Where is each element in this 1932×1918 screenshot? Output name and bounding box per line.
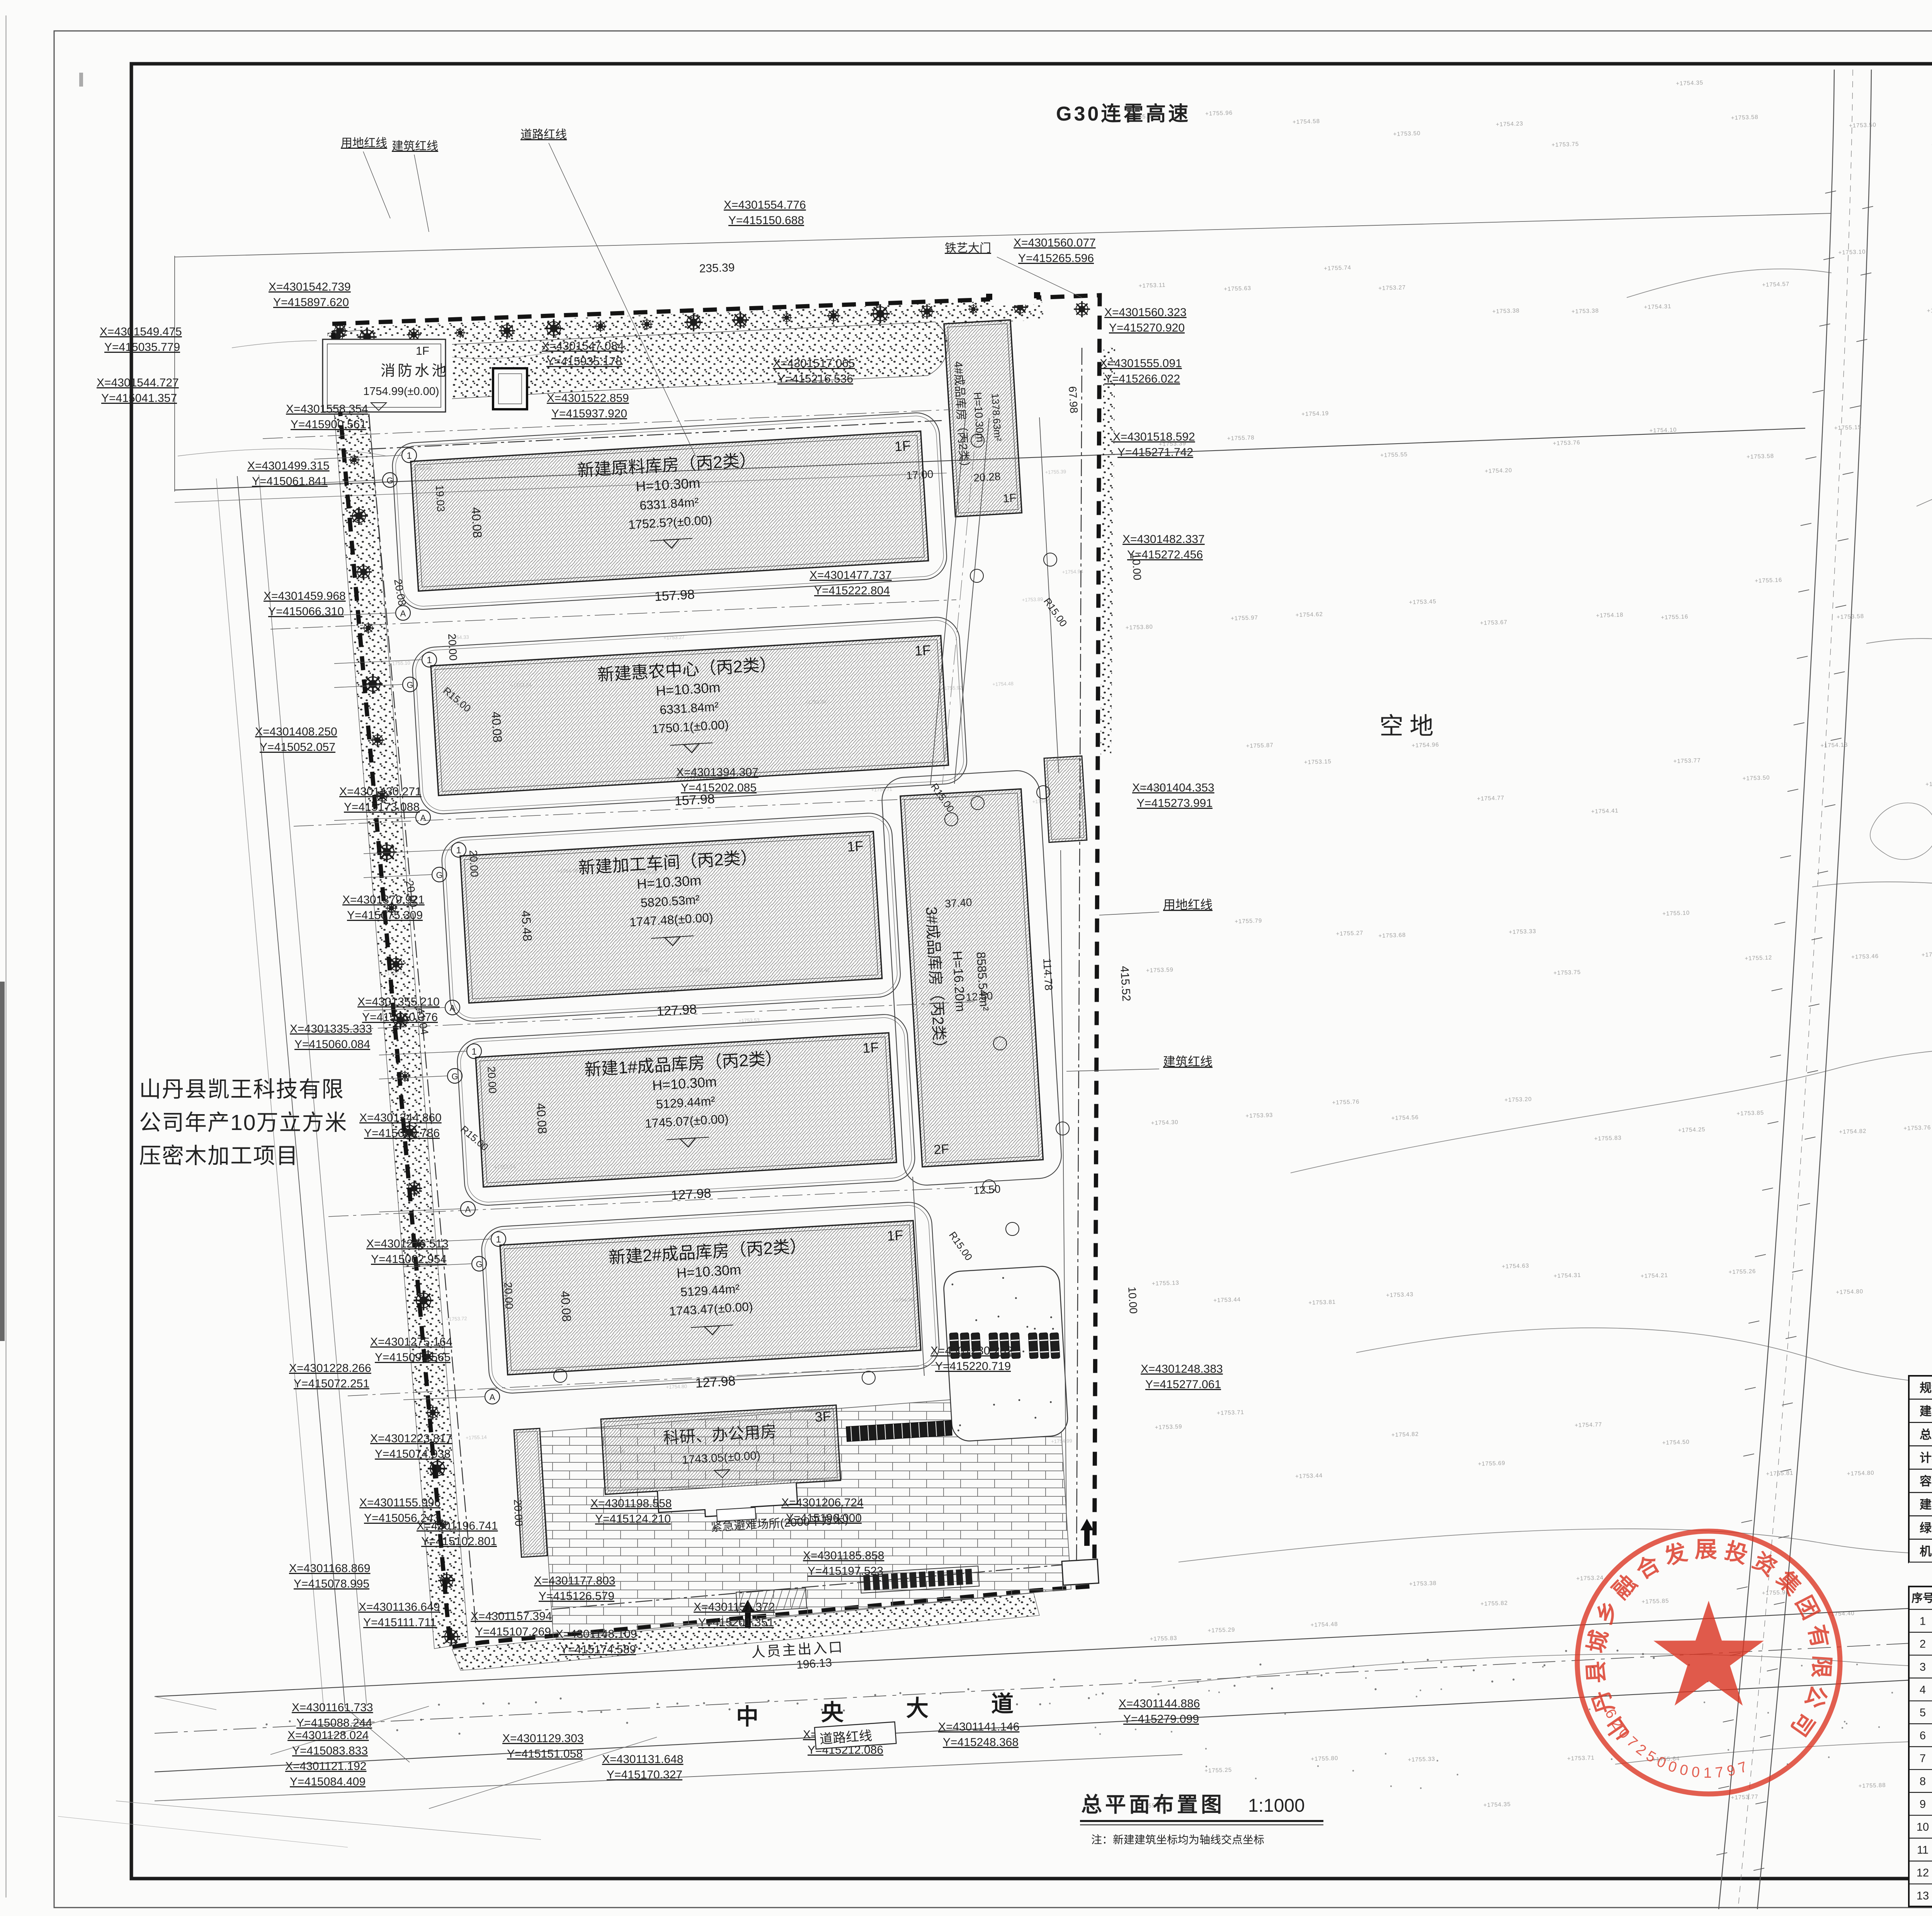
svg-text:+1753.76: +1753.76 <box>1903 1124 1931 1132</box>
svg-text:X=4301430.271: X=4301430.271 <box>339 785 422 798</box>
svg-text:道: 道 <box>991 1692 1014 1717</box>
svg-text:Y=415279.099: Y=415279.099 <box>1123 1713 1199 1726</box>
svg-text:+1754.23: +1754.23 <box>1496 120 1524 128</box>
svg-text:Y=415272.456: Y=415272.456 <box>1127 548 1203 561</box>
svg-text:+1755.81: +1755.81 <box>1766 1470 1794 1477</box>
svg-text:Y=415197.523: Y=415197.523 <box>808 1565 883 1578</box>
svg-text:Y=415216.536: Y=415216.536 <box>777 373 853 385</box>
svg-text:1754.99(±0.00): 1754.99(±0.00) <box>363 385 439 398</box>
svg-text:+1754.25: +1754.25 <box>1678 1126 1706 1133</box>
svg-text:+1753.33: +1753.33 <box>1509 928 1536 935</box>
svg-text:Y=415196.000: Y=415196.000 <box>786 1512 862 1525</box>
svg-text:X=4301157.394: X=4301157.394 <box>471 1610 552 1623</box>
svg-text:Y=415062.954: Y=415062.954 <box>371 1253 447 1266</box>
svg-text:+1753.44: +1753.44 <box>1213 1296 1241 1304</box>
svg-text:Y=415277.061: Y=415277.061 <box>1145 1378 1221 1391</box>
svg-text:+1753.27: +1753.27 <box>663 634 685 641</box>
svg-text:Y=415061.841: Y=415061.841 <box>252 475 328 488</box>
svg-text:+1754.30: +1754.30 <box>1922 951 1932 958</box>
svg-text:X=4301558.354: X=4301558.354 <box>286 403 368 415</box>
svg-text:+1754.62: +1754.62 <box>1296 611 1323 618</box>
svg-text:X=4301459.968: X=4301459.968 <box>264 590 346 602</box>
svg-text:1: 1 <box>1920 1615 1926 1627</box>
svg-text:+1753.43: +1753.43 <box>1386 1291 1414 1299</box>
svg-text:+1753.58: +1753.58 <box>1837 613 1864 620</box>
svg-text:40.08: 40.08 <box>534 1103 549 1134</box>
svg-text:+1753.10: +1753.10 <box>1838 248 1866 256</box>
svg-text:+1755.26: +1755.26 <box>1728 1268 1756 1275</box>
svg-text:+1755.39: +1755.39 <box>1045 469 1066 475</box>
svg-text:A: A <box>490 1392 495 1402</box>
svg-text:X=4301554.776: X=4301554.776 <box>724 199 806 211</box>
svg-text:+1753.93: +1753.93 <box>1245 1112 1273 1119</box>
svg-text:+1754.48: +1754.48 <box>992 681 1014 687</box>
svg-text:Y=415060.376: Y=415060.376 <box>362 1011 438 1024</box>
svg-text:1F: 1F <box>894 437 911 454</box>
svg-text:10.00: 10.00 <box>1126 1287 1139 1314</box>
svg-text:计容建筑面积：: 计容建筑面积： <box>1920 1451 1932 1465</box>
svg-text:+1754.82: +1754.82 <box>1391 1431 1419 1438</box>
svg-text:规划用地面积：: 规划用地面积： <box>1920 1381 1932 1395</box>
svg-text:+1753.75: +1753.75 <box>1553 969 1581 976</box>
svg-text:X=4301379.921: X=4301379.921 <box>342 893 425 906</box>
svg-text:Y=415266.022: Y=415266.022 <box>1104 373 1180 385</box>
svg-text:12: 12 <box>1917 1867 1929 1879</box>
svg-text:Y=415248.368: Y=415248.368 <box>943 1736 1019 1749</box>
svg-text:+1753.76: +1753.76 <box>1553 439 1580 447</box>
svg-text:235.39: 235.39 <box>699 261 735 275</box>
svg-text:Y=415265.596: Y=415265.596 <box>1018 252 1094 265</box>
svg-text:+1754.96: +1754.96 <box>1412 742 1439 749</box>
svg-text:+1754.77: +1754.77 <box>1575 1421 1602 1429</box>
svg-text:Y=415093.565: Y=415093.565 <box>375 1351 451 1364</box>
svg-text:Y=415900.561: Y=415900.561 <box>291 418 366 431</box>
svg-text:415.52: 415.52 <box>1118 965 1133 1002</box>
svg-text:12.50: 12.50 <box>966 990 993 1003</box>
svg-text:X=4301482.337: X=4301482.337 <box>1122 533 1205 546</box>
svg-text:Y=415222.804: Y=415222.804 <box>814 584 890 597</box>
svg-text:157.98: 157.98 <box>654 587 695 604</box>
svg-text:X=4301129.303: X=4301129.303 <box>502 1732 583 1745</box>
svg-text:+1755.63: +1755.63 <box>1224 285 1252 292</box>
svg-text:Y=415074.038: Y=415074.038 <box>375 1448 451 1460</box>
svg-text:+1755.55: +1755.55 <box>1380 451 1408 458</box>
svg-text:Y=415052.057: Y=415052.057 <box>260 741 335 754</box>
svg-text:公司年产10万立方米: 公司年产10万立方米 <box>139 1110 347 1135</box>
svg-text:+1755.29: +1755.29 <box>1207 1627 1235 1634</box>
svg-text:道路红线: 道路红线 <box>520 128 567 141</box>
svg-text:+1755.78: +1755.78 <box>1227 434 1255 442</box>
svg-text:X=4301228.266: X=4301228.266 <box>289 1362 371 1375</box>
svg-text:+1755.69: +1755.69 <box>1478 1460 1506 1467</box>
svg-text:Y=415935.178: Y=415935.178 <box>546 355 622 368</box>
svg-text:X=4301168.869: X=4301168.869 <box>289 1562 370 1575</box>
svg-text:127.98: 127.98 <box>695 1374 736 1391</box>
svg-text:Y=415937.920: Y=415937.920 <box>551 407 627 420</box>
svg-text:Y=415897.620: Y=415897.620 <box>273 296 349 309</box>
svg-text:11: 11 <box>1917 1844 1929 1856</box>
svg-text:40.08: 40.08 <box>489 711 505 743</box>
svg-text:+1755.74: +1755.74 <box>1324 264 1352 272</box>
svg-text:+1754.80: +1754.80 <box>1847 1470 1874 1477</box>
svg-text:45.48: 45.48 <box>519 910 535 942</box>
svg-text:Y=415041.357: Y=415041.357 <box>101 392 177 405</box>
svg-text:+1753.15: +1753.15 <box>1304 758 1332 766</box>
svg-text:+1755.85: +1755.85 <box>1641 1598 1669 1605</box>
svg-text:+1755.82: +1755.82 <box>1480 1600 1508 1607</box>
svg-text:+1753.58: +1753.58 <box>1731 114 1759 121</box>
svg-text:X=4301394.307: X=4301394.307 <box>676 766 759 779</box>
svg-text:Y=415075.309: Y=415075.309 <box>347 909 423 922</box>
svg-text:X=4301223.817: X=4301223.817 <box>370 1432 452 1445</box>
svg-text:+1753.71: +1753.71 <box>1217 1409 1245 1416</box>
svg-text:+1753.89: +1753.89 <box>1022 596 1043 603</box>
svg-text:G: G <box>386 476 393 485</box>
svg-text:Y=415202.085: Y=415202.085 <box>681 781 757 794</box>
svg-text:+1753.58: +1753.58 <box>1747 453 1774 460</box>
svg-text:X=4301131.648: X=4301131.648 <box>602 1753 683 1766</box>
svg-text:X=4301144.886: X=4301144.886 <box>1119 1697 1200 1710</box>
svg-text:114.78: 114.78 <box>1041 958 1055 991</box>
svg-text:20.28: 20.28 <box>973 470 1001 484</box>
svg-text:消防水池: 消防水池 <box>381 363 449 379</box>
svg-text:+1754.30: +1754.30 <box>1151 1119 1179 1126</box>
svg-text:X=4301198.558: X=4301198.558 <box>590 1497 672 1510</box>
svg-text:Y=415035.779: Y=415035.779 <box>104 341 180 354</box>
svg-text:12.50: 12.50 <box>973 1183 1001 1196</box>
svg-text:G: G <box>436 870 442 880</box>
svg-text:9: 9 <box>1920 1798 1926 1811</box>
svg-text:+1754.21: +1754.21 <box>1641 1272 1668 1279</box>
svg-text:Y=415174.589: Y=415174.589 <box>560 1643 636 1656</box>
svg-text:20.00: 20.00 <box>502 1282 515 1310</box>
svg-text:Y=415126.579: Y=415126.579 <box>539 1590 614 1603</box>
svg-text:+1754.63: +1754.63 <box>1502 1263 1529 1270</box>
svg-text:X=4301275.164: X=4301275.164 <box>370 1336 452 1348</box>
svg-text:1F: 1F <box>862 1039 879 1056</box>
svg-text:Y=415111.711: Y=415111.711 <box>363 1616 436 1629</box>
svg-text:+1753.20: +1753.20 <box>1504 1096 1532 1103</box>
svg-text:4: 4 <box>1920 1684 1926 1696</box>
svg-text:3F: 3F <box>814 1408 831 1425</box>
svg-text:X=4301555.091: X=4301555.091 <box>1100 357 1182 370</box>
svg-text:+1753.80: +1753.80 <box>1126 624 1153 631</box>
svg-text:+1753.85: +1753.85 <box>1736 1110 1764 1117</box>
svg-text:+1754.80: +1754.80 <box>666 1384 687 1390</box>
svg-text:X=4301517.065: X=4301517.065 <box>773 357 855 370</box>
svg-text:+1753.27: +1753.27 <box>1378 284 1406 291</box>
svg-text:+1754.35: +1754.35 <box>1676 80 1704 87</box>
svg-text:+1753.68: +1753.68 <box>1378 932 1406 939</box>
svg-text:1:1000: 1:1000 <box>1248 1795 1305 1816</box>
svg-text:X=4301404.353: X=4301404.353 <box>1132 781 1214 794</box>
svg-text:+1755.33: +1755.33 <box>1408 1756 1435 1763</box>
svg-text:用地红线: 用地红线 <box>341 137 387 150</box>
svg-text:Y=415072.251: Y=415072.251 <box>294 1377 369 1390</box>
svg-text:5: 5 <box>1920 1707 1926 1719</box>
svg-text:6: 6 <box>1920 1729 1926 1742</box>
svg-text:20.00: 20.00 <box>467 850 481 878</box>
svg-text:G: G <box>476 1259 482 1269</box>
svg-text:40.08: 40.08 <box>558 1290 574 1322</box>
svg-text:压密木加工项目: 压密木加工项目 <box>139 1144 299 1168</box>
svg-text:X=4301141.146: X=4301141.146 <box>938 1721 1019 1733</box>
svg-text:Y=415173.088: Y=415173.088 <box>344 801 420 813</box>
svg-text:+1755.79: +1755.79 <box>1235 917 1262 925</box>
svg-text:+1754.31: +1754.31 <box>1553 1272 1581 1279</box>
svg-text:X=4301148.109: X=4301148.109 <box>556 1628 637 1641</box>
svg-text:Y=415056.243: Y=415056.243 <box>364 1512 440 1525</box>
svg-text:X=4301560.077: X=4301560.077 <box>1014 237 1096 249</box>
svg-text:13: 13 <box>1917 1890 1929 1902</box>
svg-text:Y=415271.742: Y=415271.742 <box>1117 446 1193 459</box>
svg-text:+1755.10: +1755.10 <box>1662 910 1690 917</box>
svg-text:+1755.16: +1755.16 <box>1661 613 1689 621</box>
svg-text:1F: 1F <box>1002 492 1017 505</box>
svg-text:X=4301155.996: X=4301155.996 <box>359 1496 440 1509</box>
svg-text:+1753.38: +1753.38 <box>1571 308 1599 315</box>
svg-text:2: 2 <box>1920 1638 1926 1651</box>
svg-text:20.00: 20.00 <box>512 1499 525 1527</box>
svg-text:40.08: 40.08 <box>469 507 485 538</box>
svg-text:+1755.12: +1755.12 <box>1745 954 1772 962</box>
svg-text:1F: 1F <box>886 1227 903 1244</box>
svg-text:1F: 1F <box>914 642 931 659</box>
svg-text:1: 1 <box>406 451 412 461</box>
svg-text:Y=415088.244: Y=415088.244 <box>296 1717 372 1729</box>
svg-text:Y=415273.991: Y=415273.991 <box>1137 797 1213 810</box>
svg-text:Y=415082.786: Y=415082.786 <box>364 1127 440 1140</box>
svg-text:G: G <box>406 680 413 690</box>
svg-text:+1753.63: +1753.63 <box>1927 307 1932 314</box>
svg-text:X=4301230.202: X=4301230.202 <box>930 1344 1013 1357</box>
svg-text:X=4301518.592: X=4301518.592 <box>1113 431 1195 443</box>
svg-text:1: 1 <box>471 1047 476 1057</box>
svg-text:+1753.50: +1753.50 <box>1849 122 1877 129</box>
svg-text:Y=415220.719: Y=415220.719 <box>935 1360 1011 1373</box>
svg-text:X=4301522.859: X=4301522.859 <box>547 392 629 405</box>
svg-text:Y=415102.801: Y=415102.801 <box>421 1535 497 1548</box>
svg-text:X=4301355.210: X=4301355.210 <box>357 996 440 1008</box>
svg-text:10: 10 <box>1917 1821 1929 1833</box>
svg-text:X=4301560.323: X=4301560.323 <box>1104 306 1187 319</box>
svg-text:Y=415083.833: Y=415083.833 <box>292 1744 368 1757</box>
svg-text:A: A <box>465 1205 471 1214</box>
svg-text:+1755.88: +1755.88 <box>1858 1782 1886 1789</box>
svg-text:+1754.31: +1754.31 <box>1644 303 1672 310</box>
svg-text:X=4301276.513: X=4301276.513 <box>366 1237 449 1250</box>
svg-text:+1753.77: +1753.77 <box>1731 1794 1759 1801</box>
svg-text:+1753.11: +1753.11 <box>1138 282 1165 289</box>
svg-text:+1754.18: +1754.18 <box>1596 611 1624 619</box>
svg-text:+1753.45: +1753.45 <box>1409 598 1437 606</box>
svg-text:用地红线: 用地红线 <box>1163 898 1213 912</box>
svg-text:+1753.75: +1753.75 <box>1551 141 1579 148</box>
svg-text:绿地率：: 绿地率： <box>1920 1521 1932 1535</box>
svg-text:+1754.20: +1754.20 <box>1485 467 1512 475</box>
svg-text:2F: 2F <box>933 1142 949 1157</box>
svg-text:X=4301206.724: X=4301206.724 <box>781 1496 864 1509</box>
svg-text:X=4301477.737: X=4301477.737 <box>810 569 892 582</box>
svg-text:+1754.80: +1754.80 <box>1836 1288 1864 1295</box>
svg-text:+1753.67: +1753.67 <box>1480 619 1508 626</box>
svg-text:8: 8 <box>1920 1775 1926 1788</box>
svg-text:大: 大 <box>906 1696 929 1721</box>
svg-text:+1755.16: +1755.16 <box>1755 577 1782 584</box>
svg-text:+1754.57: +1754.57 <box>1762 281 1790 288</box>
svg-text:铁艺大门: 铁艺大门 <box>945 242 991 255</box>
svg-text:+1755.80: +1755.80 <box>1311 1755 1338 1762</box>
svg-text:X=4301128.024: X=4301128.024 <box>287 1729 369 1742</box>
svg-text:X=4301549.475: X=4301549.475 <box>100 325 182 338</box>
svg-text:7: 7 <box>1920 1753 1926 1765</box>
svg-text:央: 央 <box>821 1700 844 1725</box>
svg-text:X=4301161.733: X=4301161.733 <box>292 1701 373 1714</box>
svg-text:+1755.83: +1755.83 <box>1594 1135 1622 1142</box>
svg-text:1F: 1F <box>847 838 864 854</box>
svg-text:Y=415078.995: Y=415078.995 <box>294 1578 369 1590</box>
svg-text:A: A <box>420 813 426 823</box>
svg-text:+1753.50: +1753.50 <box>1742 774 1770 782</box>
svg-text:Y=415124.210: Y=415124.210 <box>595 1513 671 1525</box>
svg-text:+1753.38: +1753.38 <box>1492 307 1520 315</box>
svg-text:建筑密度：: 建筑密度： <box>1920 1498 1932 1511</box>
svg-text:序号: 序号 <box>1912 1591 1932 1605</box>
svg-text:A: A <box>400 609 406 618</box>
svg-text:建筑占地面积：: 建筑占地面积： <box>1920 1404 1932 1418</box>
svg-text:建筑红线: 建筑红线 <box>392 140 438 153</box>
svg-text:20.00: 20.00 <box>485 1066 499 1094</box>
svg-text:+1754.13: +1754.13 <box>1820 742 1848 749</box>
svg-text:+1753.77: +1753.77 <box>1673 757 1701 764</box>
svg-text:+1753.38: +1753.38 <box>1409 1580 1437 1587</box>
svg-text:3: 3 <box>1920 1661 1926 1673</box>
svg-text:总建筑面积：: 总建筑面积： <box>1920 1428 1932 1441</box>
svg-text:Y=415170.327: Y=415170.327 <box>607 1768 682 1781</box>
svg-text:+1755.97: +1755.97 <box>1231 614 1259 622</box>
svg-text:Y=415150.688: Y=415150.688 <box>728 214 804 227</box>
svg-text:127.98: 127.98 <box>656 1002 697 1019</box>
svg-text:19.03: 19.03 <box>434 485 447 512</box>
svg-text:X=4301335.333: X=4301335.333 <box>290 1023 372 1035</box>
svg-text:X=4301344.860: X=4301344.860 <box>359 1111 442 1124</box>
svg-text:+1754.35: +1754.35 <box>1483 1801 1511 1808</box>
svg-text:+1755.15: +1755.15 <box>1834 424 1862 431</box>
svg-text:建筑红线: 建筑红线 <box>1163 1055 1213 1069</box>
svg-text:1F: 1F <box>416 345 429 357</box>
svg-text:X=4301136.649: X=4301136.649 <box>359 1601 440 1613</box>
svg-text:X=4301151.372: X=4301151.372 <box>694 1601 775 1613</box>
svg-text:Y=415107.269: Y=415107.269 <box>475 1625 551 1638</box>
svg-text:+1754.82: +1754.82 <box>1839 1128 1867 1135</box>
svg-text:+1753.81: +1753.81 <box>1308 1299 1336 1306</box>
svg-text:+1754.48: +1754.48 <box>1310 1621 1338 1628</box>
svg-text:+1753.50: +1753.50 <box>1393 130 1421 137</box>
svg-text:X=4301544.727: X=4301544.727 <box>97 376 179 389</box>
svg-text:1: 1 <box>427 655 432 665</box>
svg-text:+1755.25: +1755.25 <box>1204 1767 1232 1774</box>
svg-text:Y=415060.084: Y=415060.084 <box>294 1038 370 1051</box>
svg-text:X=4301542.739: X=4301542.739 <box>269 281 351 293</box>
svg-text:X=4301547.084: X=4301547.084 <box>542 340 624 352</box>
svg-text:+1753.71: +1753.71 <box>1567 1755 1595 1762</box>
svg-text:+1753.24: +1753.24 <box>1576 1574 1604 1582</box>
svg-text:+1755.76: +1755.76 <box>1332 1099 1360 1106</box>
svg-text:X=4301499.315: X=4301499.315 <box>247 460 330 472</box>
svg-text:中: 中 <box>736 1704 759 1729</box>
svg-text:+1754.50: +1754.50 <box>1662 1439 1690 1446</box>
svg-text:Y=415084.409: Y=415084.409 <box>290 1775 366 1788</box>
svg-text:20.00: 20.00 <box>446 633 459 661</box>
svg-text:+1754.94: +1754.94 <box>1062 568 1083 575</box>
svg-text:196.13: 196.13 <box>796 1656 832 1671</box>
svg-text:+1753.44: +1753.44 <box>1295 1472 1323 1480</box>
svg-text:37.40: 37.40 <box>945 896 973 910</box>
svg-text:1: 1 <box>456 845 461 856</box>
svg-text:+1755.14: +1755.14 <box>466 1434 487 1441</box>
svg-text:+1754.41: +1754.41 <box>1591 807 1619 815</box>
svg-text:+1753.59: +1753.59 <box>1146 967 1174 974</box>
svg-text:X=4301248.383: X=4301248.383 <box>1141 1363 1223 1375</box>
svg-text:+1755.83: +1755.83 <box>1150 1635 1177 1642</box>
svg-text:X=4301408.250: X=4301408.250 <box>255 725 337 738</box>
svg-text:+1754.19: +1754.19 <box>1301 410 1329 417</box>
svg-text:X=4301177.803: X=4301177.803 <box>534 1574 615 1587</box>
svg-text:17.00: 17.00 <box>906 468 934 482</box>
svg-text:空地: 空地 <box>1379 713 1440 740</box>
svg-text:Y=415201.351: Y=415201.351 <box>698 1616 774 1629</box>
svg-text:+1753.97: +1753.97 <box>1925 780 1932 788</box>
svg-text:+1755.13: +1755.13 <box>1152 1280 1180 1287</box>
svg-text:G: G <box>451 1072 458 1081</box>
svg-text:1: 1 <box>496 1234 501 1245</box>
svg-text:A: A <box>450 1003 456 1013</box>
svg-text:Y=415270.920: Y=415270.920 <box>1109 322 1185 334</box>
svg-text:G30连霍高速: G30连霍高速 <box>1056 103 1190 125</box>
svg-text:+1755.96: +1755.96 <box>1205 110 1233 117</box>
svg-text:X=4301185.858: X=4301185.858 <box>803 1549 884 1562</box>
svg-text:127.98: 127.98 <box>670 1186 711 1203</box>
svg-text:总平面布置图: 总平面布置图 <box>1081 1793 1225 1816</box>
svg-text:+1755.27: +1755.27 <box>1336 930 1364 937</box>
svg-text:注：新建建筑坐标均为轴线交点坐标: 注：新建建筑坐标均为轴线交点坐标 <box>1091 1834 1264 1846</box>
svg-text:山丹县凯王科技有限: 山丹县凯王科技有限 <box>139 1077 344 1102</box>
svg-text:容积率：: 容积率： <box>1920 1475 1932 1488</box>
svg-text:+1754.56: +1754.56 <box>1391 1114 1419 1122</box>
svg-text:机动车停车位：: 机动车停车位： <box>1920 1545 1932 1558</box>
svg-text:+1754.77: +1754.77 <box>1477 795 1505 802</box>
svg-text:+1754.58: +1754.58 <box>1293 118 1320 125</box>
svg-text:67.98: 67.98 <box>1066 386 1080 414</box>
svg-text:+1753.59: +1753.59 <box>1155 1423 1182 1431</box>
svg-text:Y=415151.058: Y=415151.058 <box>507 1748 583 1760</box>
svg-text:+1753.46: +1753.46 <box>1851 953 1879 960</box>
svg-text:Y=415066.310: Y=415066.310 <box>268 605 344 618</box>
svg-text:+1755.87: +1755.87 <box>1246 742 1274 749</box>
svg-text:+1753.72: +1753.72 <box>446 1316 467 1322</box>
svg-text:X=4301121.192: X=4301121.192 <box>285 1760 366 1773</box>
